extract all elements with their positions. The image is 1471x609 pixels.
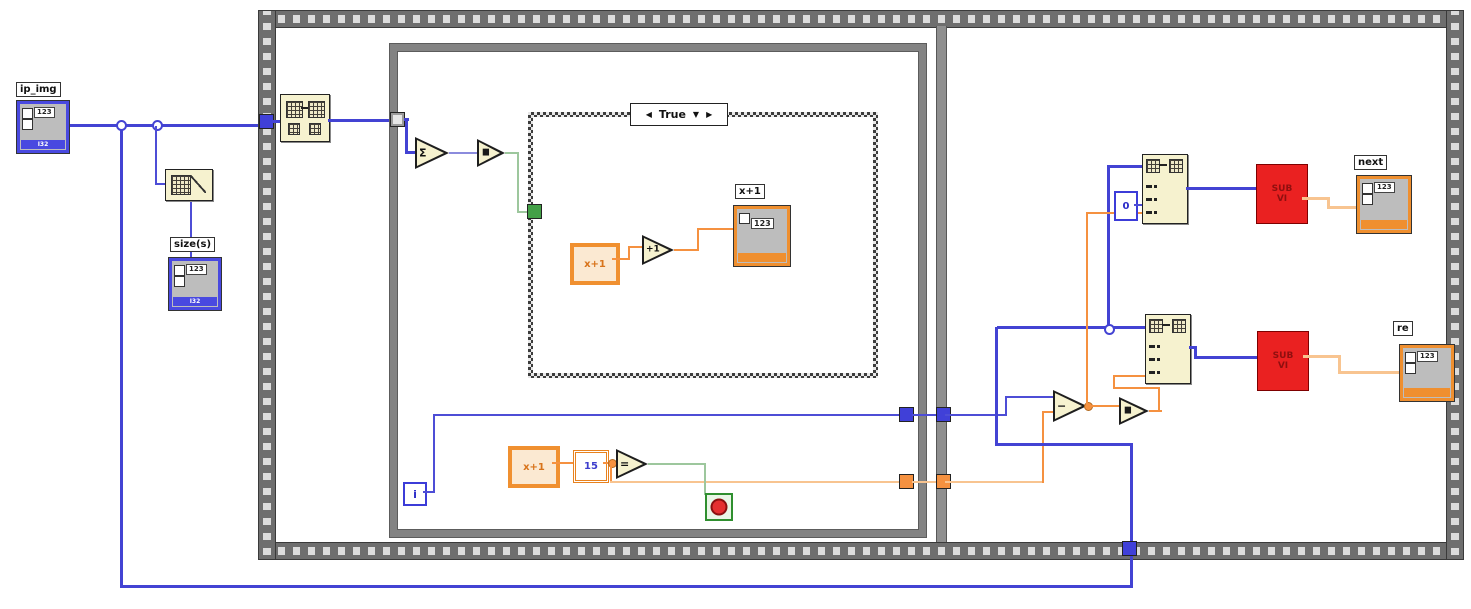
wire-feedback-bottom: [120, 585, 1133, 588]
wire-cmp-out: [1113, 375, 1145, 377]
wire-cmp-out: [1113, 387, 1160, 389]
reshape-array-node[interactable]: [280, 94, 330, 142]
wire-x1-right: [945, 481, 1044, 483]
wire-x1-to-tunnel: [610, 481, 899, 483]
wire-case-orange: [628, 247, 630, 260]
wire-iteration-to-right: [433, 414, 936, 416]
subtract-node[interactable]: −: [1053, 390, 1087, 422]
wire-loop-orange: [610, 462, 612, 483]
wire-zero: [1134, 204, 1142, 206]
sequence-border-bottom[interactable]: [258, 542, 1464, 560]
case-selector-value[interactable]: True: [659, 108, 686, 121]
array-index-icon: [739, 213, 750, 224]
x1-local-variable-case[interactable]: x+1: [570, 243, 620, 285]
wire-bool-stop: [704, 463, 706, 495]
case-prev-arrow-icon[interactable]: ◀: [646, 111, 652, 119]
re-array-indicator[interactable]: 123: [1399, 344, 1455, 402]
constant-15[interactable]: 15: [573, 450, 609, 483]
wire-loop-orange: [552, 462, 573, 464]
equals-icon: =: [620, 459, 629, 470]
type-strip: [1404, 388, 1450, 397]
array-size-node[interactable]: [165, 169, 213, 201]
wire-subvi1-out: [1327, 206, 1358, 209]
wire-cmp-out: [1149, 410, 1162, 412]
numeric-element-icon: 123: [1374, 182, 1395, 193]
icon-link: [1159, 164, 1167, 166]
x1-numeric-indicator[interactable]: 123: [733, 205, 791, 267]
plus-one-icon: +1: [646, 246, 660, 255]
iteration-terminal[interactable]: i: [403, 482, 427, 506]
type-strip: I32: [173, 297, 217, 306]
terminal-mark: [1149, 371, 1160, 374]
array-subset-node-2[interactable]: [1145, 314, 1191, 384]
wire-array-right: [1107, 165, 1142, 168]
wire-feedback-up-right: [1130, 556, 1133, 588]
wire-to-arraysize: [155, 126, 157, 184]
sigma-icon: Σ: [419, 148, 427, 159]
stop-icon: [711, 499, 728, 516]
wire-ipimg-to-sequence: [68, 124, 258, 127]
array-grid-icon: [1169, 159, 1183, 173]
array-index-icon: [174, 265, 185, 276]
array-grid-icon: [1149, 319, 1163, 333]
equal-node[interactable]: =: [616, 449, 648, 479]
ip-img-array-control[interactable]: 123 I32: [16, 100, 70, 154]
array-index-icon: [22, 119, 33, 130]
subvi-2[interactable]: SUB VI: [1257, 331, 1309, 391]
wire-tunnel-to-reshape: [272, 120, 280, 123]
array-index-icon: [1362, 183, 1373, 194]
wire-bool-stop: [648, 463, 706, 465]
type-strip: [1361, 220, 1407, 229]
sequence-frame-divider[interactable]: [936, 26, 947, 542]
wire-node1-out: [1186, 187, 1258, 190]
wire-case-orange: [674, 249, 699, 251]
array-grid-icon: [1172, 319, 1186, 333]
wire-loop-array: [405, 118, 408, 154]
labview-block-diagram: ip_img 123 I32 size(s) 123 I32 Σ: [0, 0, 1471, 609]
wire-i-right: [1005, 397, 1007, 416]
next-label: next: [1354, 155, 1387, 170]
wire-node2-out: [1194, 356, 1259, 359]
wire-array-right: [997, 443, 1133, 446]
wire-gap-blue: [912, 414, 936, 416]
size-label: size(s): [170, 237, 215, 252]
array-index-icon: [1362, 194, 1373, 205]
array-index-icon: [174, 276, 185, 287]
array-index-icon: [1405, 352, 1416, 363]
wire-array-right: [1130, 444, 1133, 541]
numeric-element-icon: 123: [186, 264, 207, 275]
type-strip: [738, 253, 786, 262]
case-selector-label[interactable]: ◀ True ▼ ▶: [630, 103, 728, 126]
terminal-mark: [1146, 185, 1157, 188]
sequence-border-right[interactable]: [1446, 10, 1464, 560]
add-array-elements-node[interactable]: Σ: [415, 137, 449, 169]
numeric-element-icon: 123: [34, 107, 55, 118]
icon-link: [301, 107, 308, 109]
ip-img-label: ip_img: [16, 82, 61, 97]
numeric-element-icon: 123: [751, 218, 774, 229]
array-grid-icon: [1146, 159, 1160, 173]
comparison-node[interactable]: ▮▮: [477, 139, 505, 167]
wire-junction-dot: [1104, 324, 1115, 335]
re-label: re: [1393, 321, 1413, 336]
case-dropdown-icon[interactable]: ▼: [693, 111, 699, 119]
terminal-mark: [1146, 198, 1157, 201]
constant-0[interactable]: 0: [1114, 191, 1138, 221]
icon-link: [1162, 324, 1170, 326]
while-loop-left-tunnel[interactable]: [390, 112, 405, 127]
array-grid-icon: [286, 101, 303, 118]
wire-case-orange: [697, 228, 735, 230]
array-index-icon: [1405, 363, 1416, 374]
wire-junction-dot: [152, 120, 163, 131]
wire-cmp-out: [1113, 376, 1115, 389]
wire-feedback-down: [120, 124, 123, 588]
wire-reshape-to-loop: [328, 119, 391, 122]
terminal-mark: [1149, 345, 1160, 348]
wire-x1-right: [1042, 412, 1044, 483]
wire-array-right: [997, 326, 1145, 329]
sequence-border-top[interactable]: [258, 10, 1464, 28]
wire-junction-dot: [116, 120, 127, 131]
case-next-arrow-icon[interactable]: ▶: [706, 111, 712, 119]
dimension-icon: [309, 123, 321, 135]
sequence-bottom-tunnel[interactable]: [1122, 541, 1137, 556]
wire-subvi1-out: [1302, 197, 1330, 200]
wire-gap-orange: [912, 481, 936, 483]
dimension-icon: [288, 123, 300, 135]
terminal-mark: [1146, 211, 1157, 214]
wire-sum-to-compare: [449, 152, 477, 154]
wire-bool: [517, 152, 519, 213]
wire-cmp-out: [1158, 388, 1160, 412]
wire-i-right: [1005, 396, 1055, 398]
case-selector-tunnel[interactable]: [527, 204, 542, 219]
comparison-icon: ▮▮: [1124, 407, 1130, 416]
wire-subvi2-out: [1338, 371, 1401, 374]
increment-node[interactable]: +1: [642, 235, 674, 265]
type-strip: I32: [21, 140, 65, 149]
array-grid-icon: [171, 175, 191, 195]
numeric-element-icon: 123: [1417, 351, 1438, 362]
wire-sub-up: [1086, 213, 1088, 406]
comparison-node-right[interactable]: ▮▮: [1119, 397, 1149, 425]
wire-array-right: [1107, 166, 1110, 329]
next-array-indicator[interactable]: 123: [1356, 175, 1412, 234]
array-subset-node-1[interactable]: [1142, 154, 1188, 224]
size-array-indicator[interactable]: 123 I32: [168, 257, 222, 311]
x1-local-variable-loop[interactable]: x+1: [508, 446, 560, 488]
wire-case-orange: [697, 229, 699, 251]
array-grid-icon: [308, 101, 325, 118]
wire-sub-out: [1087, 405, 1119, 407]
x1-indicator-label: x+1: [735, 184, 765, 199]
array-index-icon: [22, 108, 33, 119]
terminal-mark: [1149, 358, 1160, 361]
minus-icon: −: [1057, 401, 1066, 412]
wire-iteration: [433, 415, 435, 493]
loop-condition-terminal[interactable]: [705, 493, 733, 521]
wire-array-right: [995, 327, 998, 446]
wire-subvi2-out: [1303, 355, 1341, 358]
comparison-icon: ▮▮: [482, 149, 488, 158]
subvi-1[interactable]: SUB VI: [1256, 164, 1308, 224]
slash-icon: [190, 175, 206, 193]
sequence-border-left[interactable]: [258, 10, 276, 560]
